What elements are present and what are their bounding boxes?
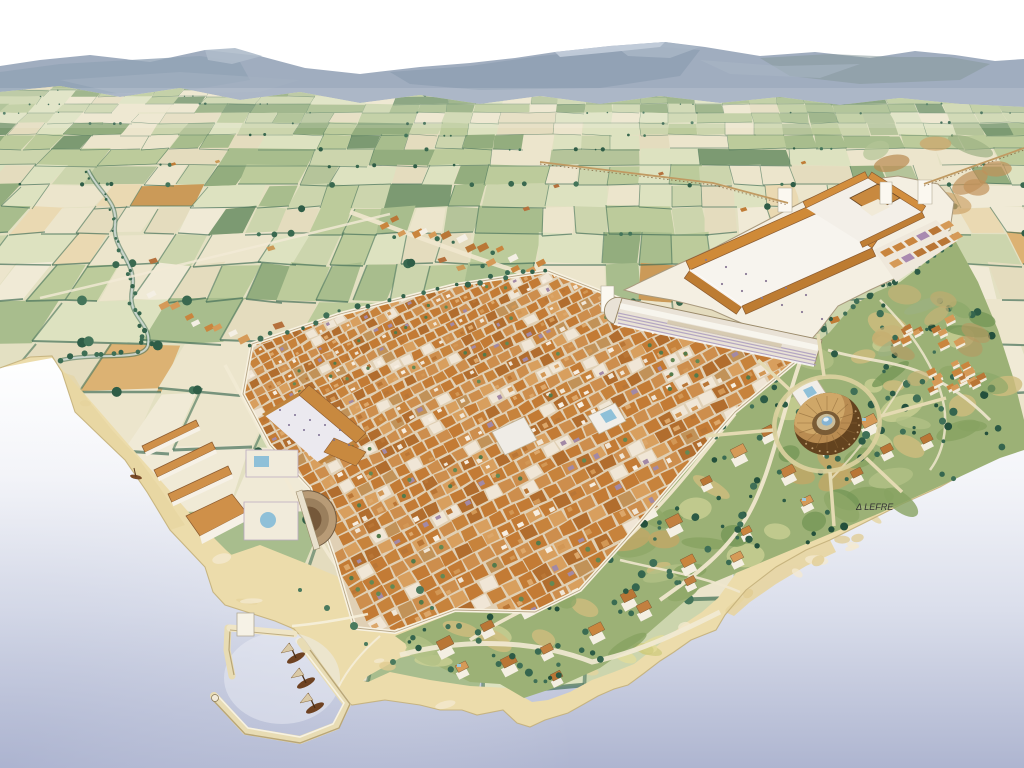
svg-text:Δ LEFRE: Δ LEFRE xyxy=(855,502,894,512)
